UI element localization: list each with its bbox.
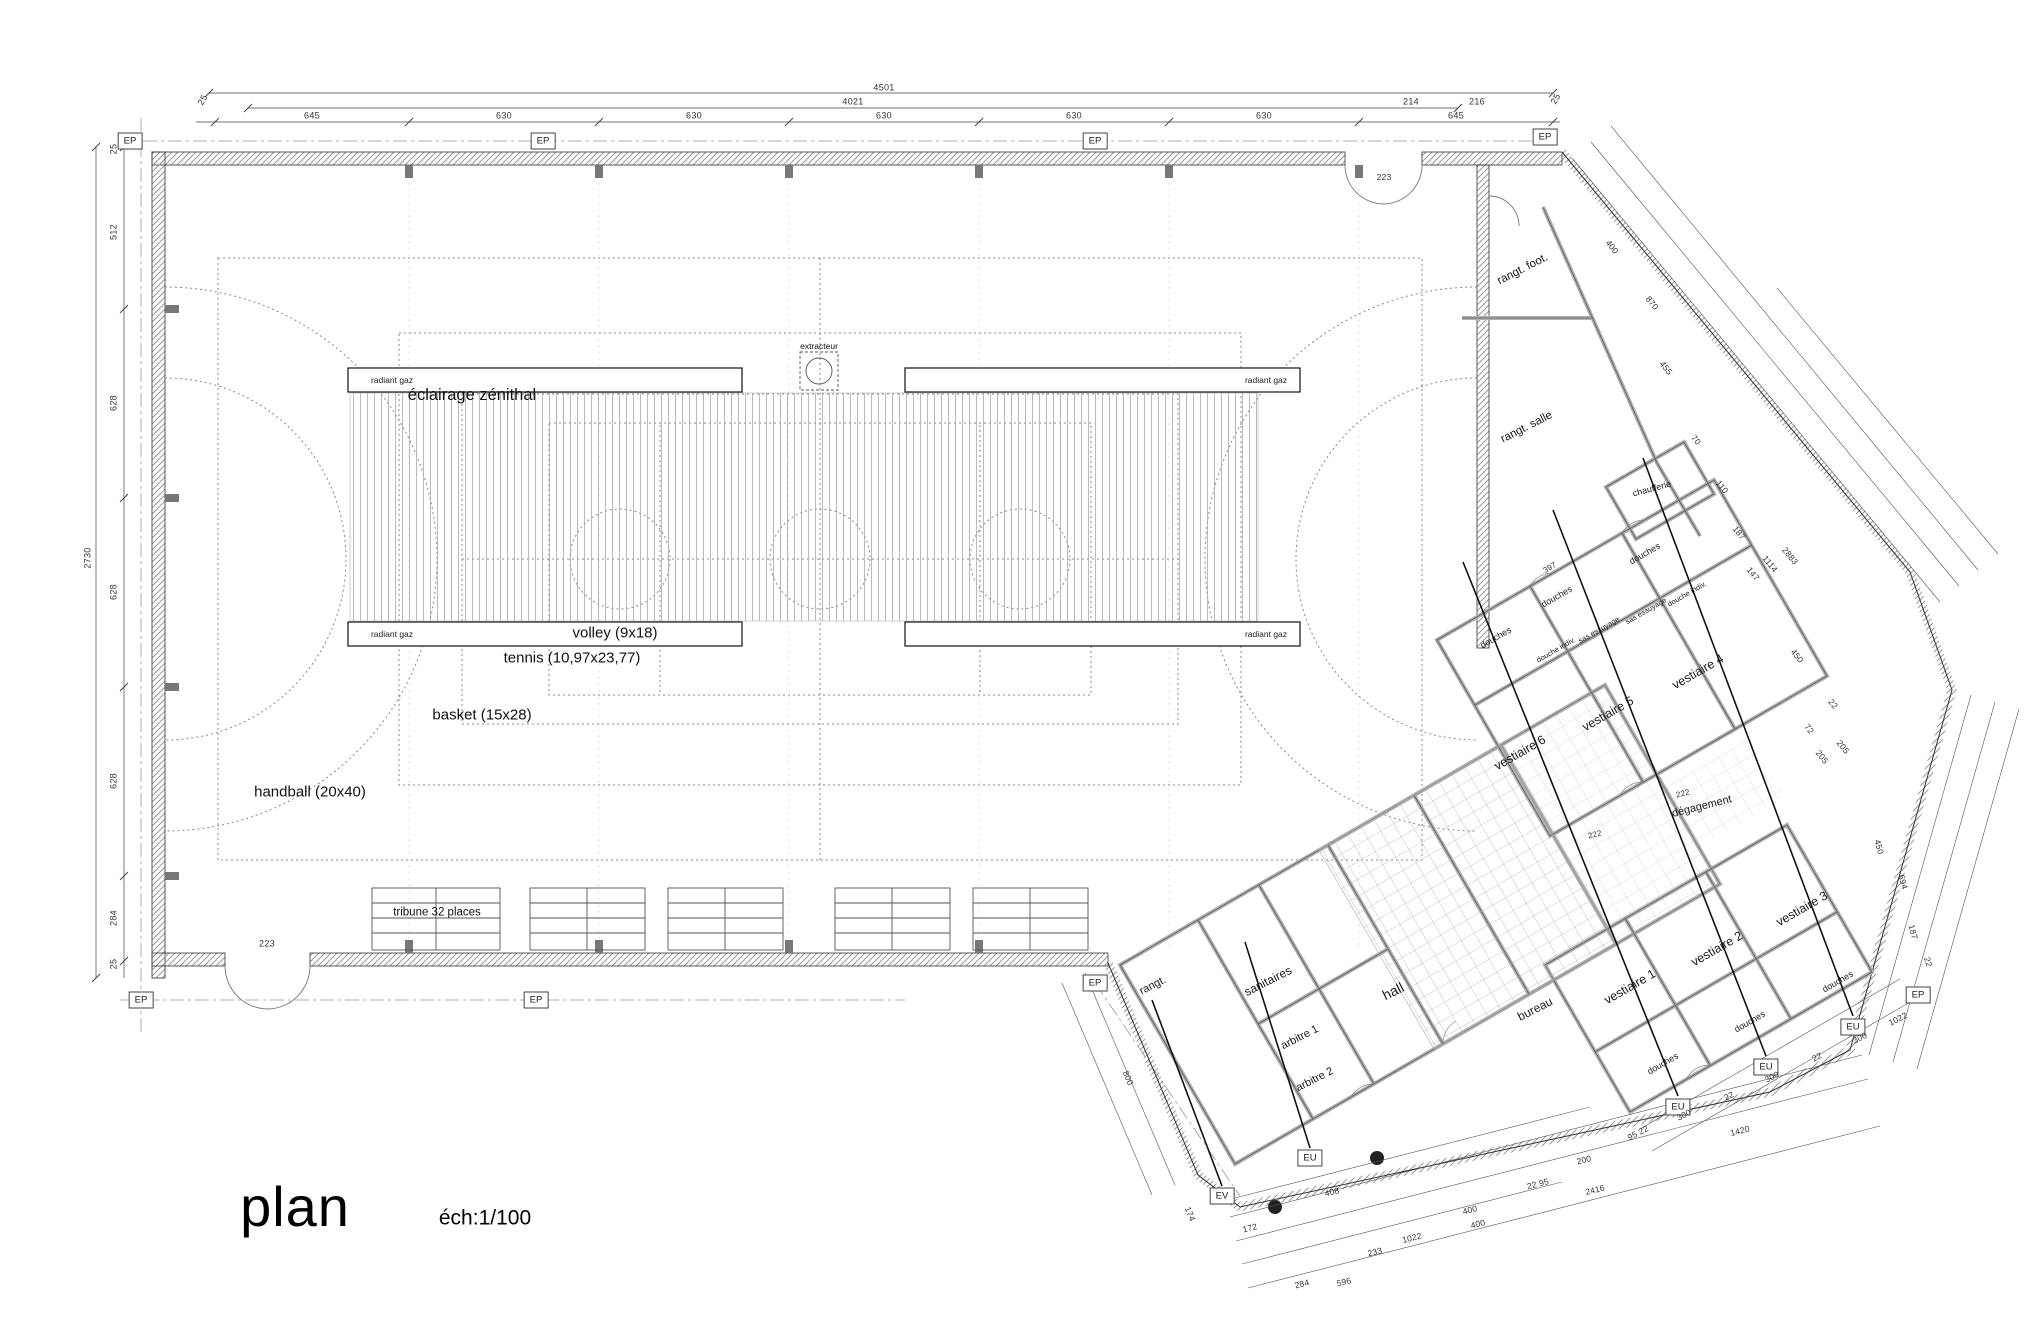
court-label-volley: volley (9x18) [572,626,657,641]
court-label-tennis: tennis (10,97x23,77) [504,651,641,666]
ep-marker: EP [1083,975,1108,992]
dim-top-seg: 645 [304,112,320,121]
dim-door-left: 223 [259,940,275,949]
skylight-hatch [350,393,1258,621]
ep-marker: EP [1906,987,1931,1004]
radiant-gaz-label: radiant gaz [371,376,413,385]
annex-walls [1108,152,1952,1207]
court-label-basket: basket (15x28) [432,708,531,723]
radiant-gaz-label: radiant gaz [371,630,413,639]
dim-left-seg: 628 [110,773,119,789]
ep-marker: EP [1533,129,1558,146]
ep-marker: EP [531,133,556,150]
dim-wing: 22 [1923,956,1934,968]
dim-left-seg: 512 [110,224,119,240]
plan-linework [0,0,2039,1322]
sheet-scale: éch:1/100 [439,1208,531,1229]
extractor-symbol [800,352,838,390]
dim-top-sub: 216 [1469,98,1485,107]
dim-door-top: 223 [1377,173,1392,182]
radiant-gaz-label: radiant gaz [1245,376,1287,385]
court-label-handball: handball (20x40) [254,785,366,800]
dim-top-seg: 645 [1448,112,1464,121]
ev-marker: EV [1210,1188,1235,1205]
dim-top-overall: 4501 [873,84,894,93]
radiant-gaz-label: radiant gaz [1245,630,1287,639]
dim-top-inner: 4021 [842,98,863,107]
ep-marker: EP [1083,133,1108,150]
ep-marker: EP [118,133,143,150]
sheet-title: plan [240,1179,350,1235]
dim-left-seg: 628 [110,584,119,600]
skylight-label: éclairage zénithal [408,387,536,404]
eu-marker: EU [1297,1150,1322,1167]
dim-left-seg: 25 [110,959,119,970]
extractor-label: extracteur [800,342,838,351]
dim-top-seg: 630 [496,112,512,121]
dim-left-overall: 2730 [84,547,93,568]
floor-plan-sheet: 4501 4021 645 630 630 630 630 630 645 21… [0,0,2039,1322]
ep-marker: EP [524,992,549,1009]
ep-marker: EP [129,992,154,1009]
dim-top-seg: 630 [1256,112,1272,121]
dim-top-seg: 630 [1066,112,1082,121]
dim-top-seg: 630 [686,112,702,121]
dim-top-sub: 214 [1403,98,1419,107]
dim-top-seg: 630 [876,112,892,121]
tribune-label: tribune 32 places [393,907,481,919]
dim-left-seg: 628 [110,395,119,411]
dim-left-seg: 284 [110,910,119,926]
